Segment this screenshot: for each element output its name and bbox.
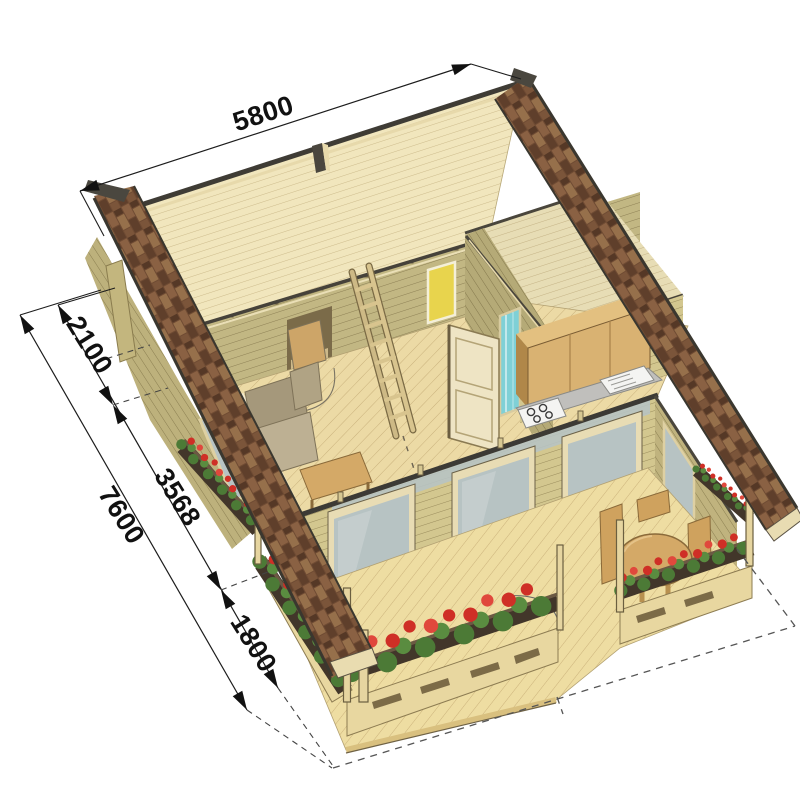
architectural-render: 5800 2100 3568 1800 7600 <box>0 0 800 800</box>
cabin-axonometric-drawing: 5800 2100 3568 1800 7600 <box>0 0 800 800</box>
yellow-window <box>428 262 455 323</box>
open-door <box>449 325 499 452</box>
